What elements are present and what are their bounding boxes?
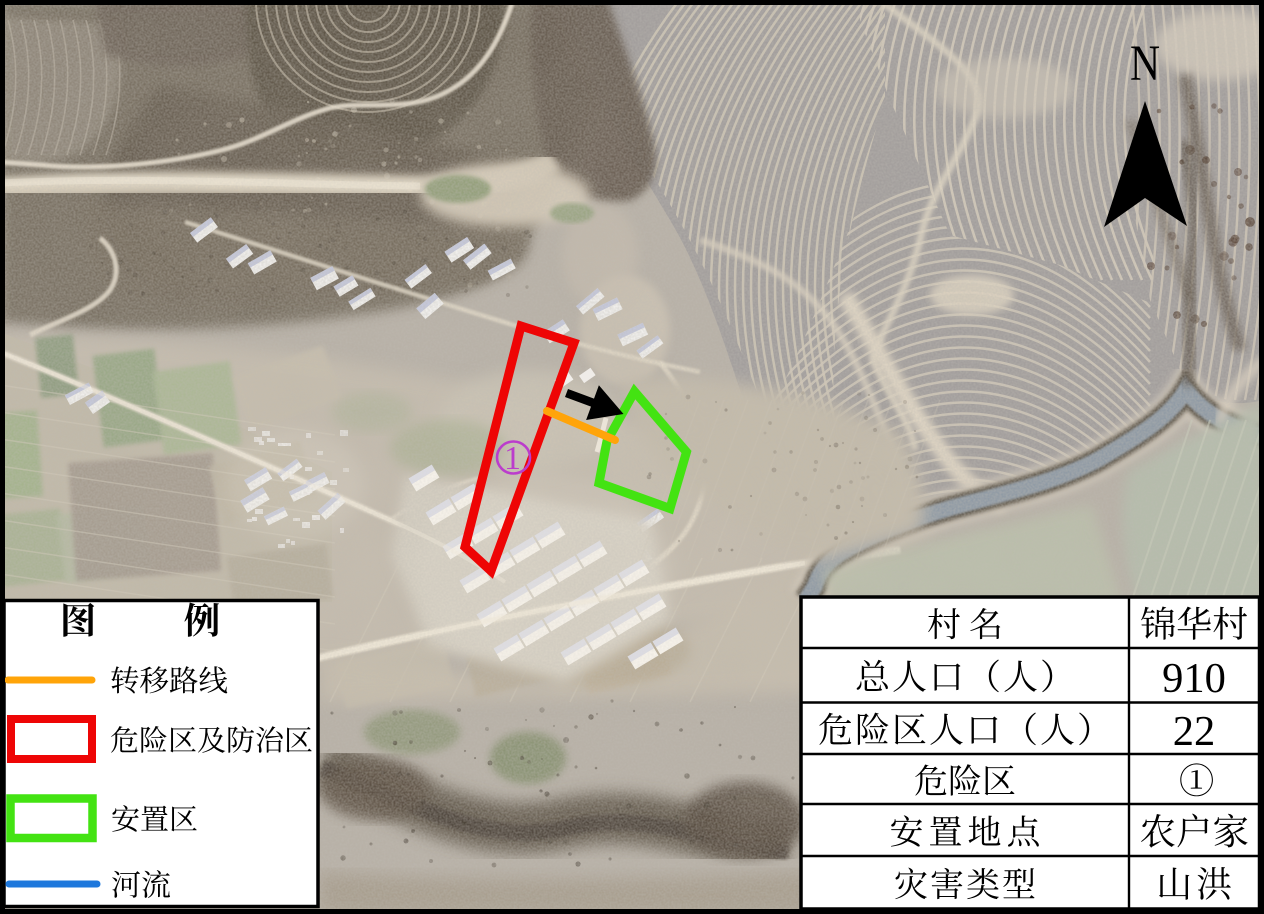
svg-text:1: 1 bbox=[504, 440, 521, 477]
svg-text:910: 910 bbox=[1162, 655, 1226, 702]
svg-text:22: 22 bbox=[1173, 708, 1216, 755]
svg-text:N: N bbox=[1130, 36, 1160, 92]
